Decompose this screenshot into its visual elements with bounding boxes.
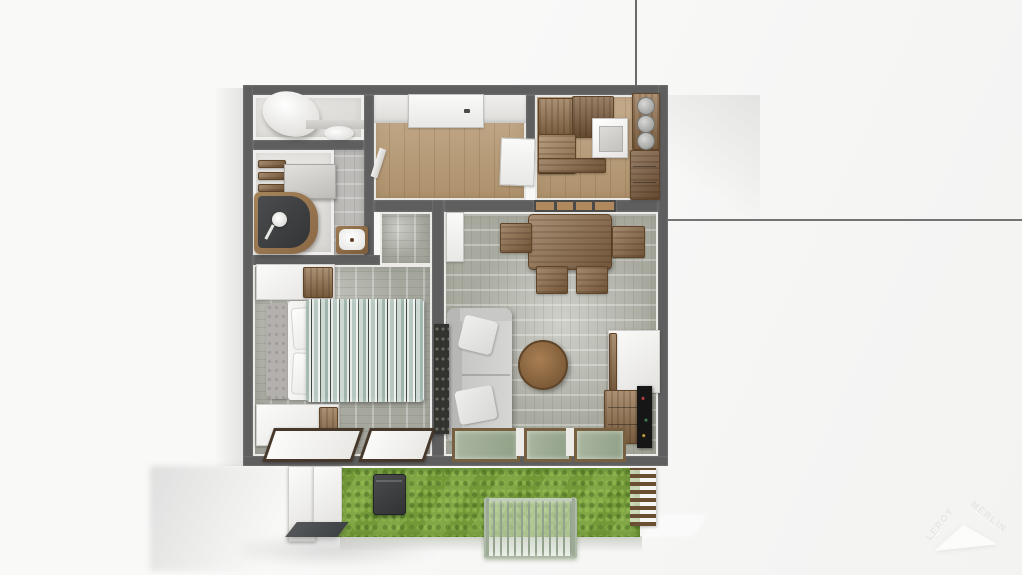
exterior-wall-segment-b[interactable] — [313, 466, 342, 529]
living-glazed-door[interactable] — [574, 428, 626, 462]
balustrade-post-right — [572, 497, 575, 556]
dining-chair[interactable] — [536, 266, 568, 294]
bedroom-dresser-top[interactable] — [256, 264, 335, 300]
kitchen-canister[interactable] — [637, 132, 655, 150]
plan-shadow-right — [668, 95, 760, 280]
kitchen-canister[interactable] — [637, 115, 655, 133]
garden-glass-balustrade[interactable] — [484, 498, 577, 558]
living-glazed-door[interactable] — [524, 428, 572, 462]
bathroom-wall-shelf[interactable] — [258, 172, 286, 180]
wall-wc-bathroom[interactable] — [253, 140, 364, 150]
dining-table[interactable] — [528, 214, 612, 270]
wall-living-top-left[interactable] — [444, 200, 534, 212]
window-pier — [516, 428, 524, 456]
kitchen-counter-strip[interactable] — [538, 158, 606, 173]
cabinet-drawer-line — [633, 182, 656, 183]
bathroom-wall-shelf[interactable] — [258, 160, 286, 168]
sofa[interactable] — [447, 308, 512, 442]
background-wall-line-vertical — [635, 0, 637, 85]
dresser-wood-door — [303, 267, 333, 298]
bedroom-bay-window[interactable] — [262, 428, 364, 462]
cabinet-drawer-line — [633, 166, 656, 167]
garden-slatted-fence[interactable] — [630, 468, 656, 526]
room-bedroom-floor-ext[interactable] — [380, 212, 432, 265]
wall-living-top-right[interactable] — [616, 200, 658, 212]
window-mullion — [592, 202, 595, 210]
living-glazed-door[interactable] — [452, 428, 520, 462]
round-coffee-table[interactable] — [518, 340, 568, 390]
wall-hallway-bedroom[interactable] — [374, 200, 434, 212]
cabinet-wood-edge — [609, 333, 617, 391]
floorplan-3d-viewport[interactable]: LEROY MERLIN — [0, 0, 1022, 575]
outer-wall-left[interactable] — [243, 85, 253, 466]
garden-storage-bin[interactable] — [373, 474, 406, 515]
plan-shadow-left — [206, 88, 244, 466]
entrance-door[interactable] — [408, 94, 484, 128]
dresser-drawer-line — [608, 407, 637, 408]
tv-flatscreen[interactable] — [637, 386, 652, 448]
window-mullion — [573, 202, 576, 210]
wc-bidet[interactable] — [324, 126, 354, 140]
leroy-merlin-watermark: LEROY MERLIN — [913, 488, 1022, 571]
dresser-drawer-line — [608, 424, 637, 425]
window-mullion — [554, 202, 557, 210]
bed-duvet[interactable] — [306, 299, 424, 402]
living-door-leaf-open[interactable] — [446, 212, 464, 262]
kitchen-door-leaf-open[interactable] — [499, 137, 536, 186]
structure-ground-shadow — [240, 538, 440, 568]
bin-lid-line — [376, 480, 402, 482]
bathroom-corner-shower[interactable] — [254, 192, 318, 254]
kitchen-upper-cabinet[interactable] — [538, 98, 574, 138]
bed-headboard[interactable] — [266, 303, 290, 399]
sofa-cushion — [454, 385, 498, 426]
sink-drain — [350, 238, 354, 242]
bedroom-bay-window[interactable] — [358, 428, 436, 462]
sofa-seat-line — [462, 374, 510, 376]
bathroom-wall-shelf[interactable] — [258, 184, 286, 192]
window-pier — [566, 428, 574, 456]
kitchen-canister[interactable] — [637, 97, 655, 115]
balustrade-post-left — [486, 497, 489, 556]
kitchen-pass-through-window[interactable] — [534, 200, 616, 212]
dining-chair[interactable] — [576, 266, 608, 294]
living-wall-panel[interactable] — [434, 324, 449, 434]
sink-bowl — [599, 126, 623, 152]
dining-chair[interactable] — [612, 226, 645, 258]
sofa-cushion — [457, 314, 498, 355]
bathroom-sink[interactable] — [336, 226, 368, 254]
kitchen-sink-unit[interactable] — [592, 118, 628, 158]
living-white-cabinet[interactable] — [608, 330, 660, 393]
door-handle — [464, 109, 470, 113]
background-wall-line-horizontal — [668, 219, 1022, 221]
dining-chair[interactable] — [500, 223, 532, 253]
kitchen-tall-cabinet[interactable] — [630, 150, 660, 200]
